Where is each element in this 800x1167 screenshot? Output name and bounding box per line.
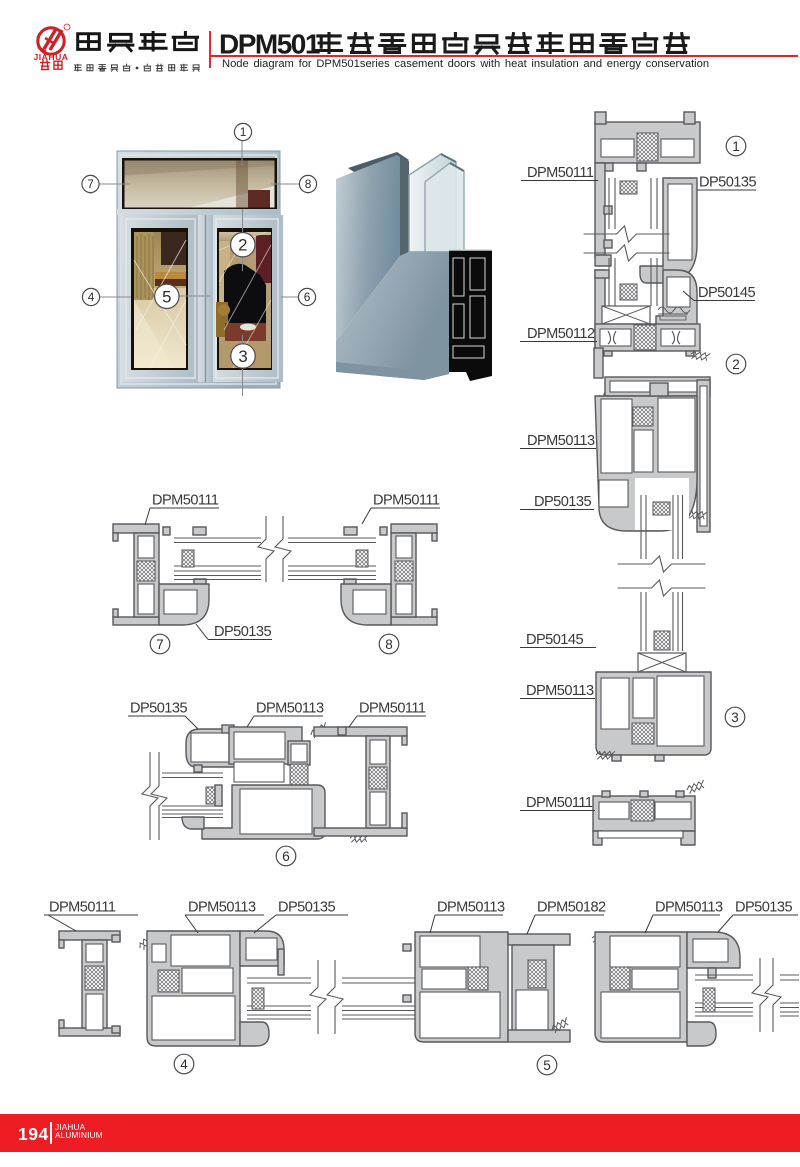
svg-text:DPM50111: DPM50111: [359, 701, 426, 717]
svg-text:DP50145: DP50145: [526, 632, 583, 648]
svg-text:2: 2: [732, 357, 740, 372]
svg-text:6: 6: [282, 849, 290, 864]
svg-text:2: 2: [238, 236, 247, 255]
svg-text:DPM50111: DPM50111: [527, 165, 594, 181]
svg-text:6: 6: [304, 290, 311, 304]
svg-text:DPM50113: DPM50113: [526, 683, 594, 699]
svg-text:DPM50113: DPM50113: [256, 701, 324, 717]
svg-text:DPM50113: DPM50113: [188, 900, 256, 916]
svg-text:DP50135: DP50135: [735, 900, 792, 916]
svg-text:DPM50111: DPM50111: [373, 493, 440, 509]
svg-text:DP50135: DP50135: [699, 175, 756, 191]
svg-text:8: 8: [305, 177, 312, 191]
svg-text:DP50135: DP50135: [534, 494, 591, 510]
svg-text:3: 3: [238, 347, 247, 366]
svg-text:DP50135: DP50135: [278, 900, 335, 916]
svg-text:DP50135: DP50135: [130, 701, 187, 717]
svg-text:DPM50113: DPM50113: [655, 900, 723, 916]
svg-text:DP50135: DP50135: [214, 624, 271, 640]
svg-text:DPM501: DPM501: [220, 32, 320, 55]
svg-text:DPM50182: DPM50182: [537, 900, 606, 916]
svg-text:4: 4: [180, 1057, 188, 1072]
svg-text:DP50145: DP50145: [698, 285, 755, 301]
svg-text:DPM50111: DPM50111: [526, 795, 593, 811]
svg-text:DPM50111: DPM50111: [49, 900, 116, 916]
svg-text:1: 1: [732, 139, 740, 154]
svg-text:7: 7: [87, 177, 94, 191]
svg-text:DPM50111: DPM50111: [152, 493, 219, 509]
svg-text:8: 8: [385, 637, 393, 652]
svg-text:DPM50113: DPM50113: [527, 433, 595, 449]
svg-text:DPM50113: DPM50113: [437, 900, 505, 916]
svg-text:4: 4: [88, 290, 95, 304]
svg-text:5: 5: [162, 287, 171, 306]
svg-text:DPM50112: DPM50112: [527, 326, 595, 342]
svg-text:3: 3: [731, 710, 739, 725]
svg-text:5: 5: [543, 1058, 551, 1073]
svg-text:7: 7: [156, 637, 164, 652]
svg-text:1: 1: [240, 125, 247, 139]
